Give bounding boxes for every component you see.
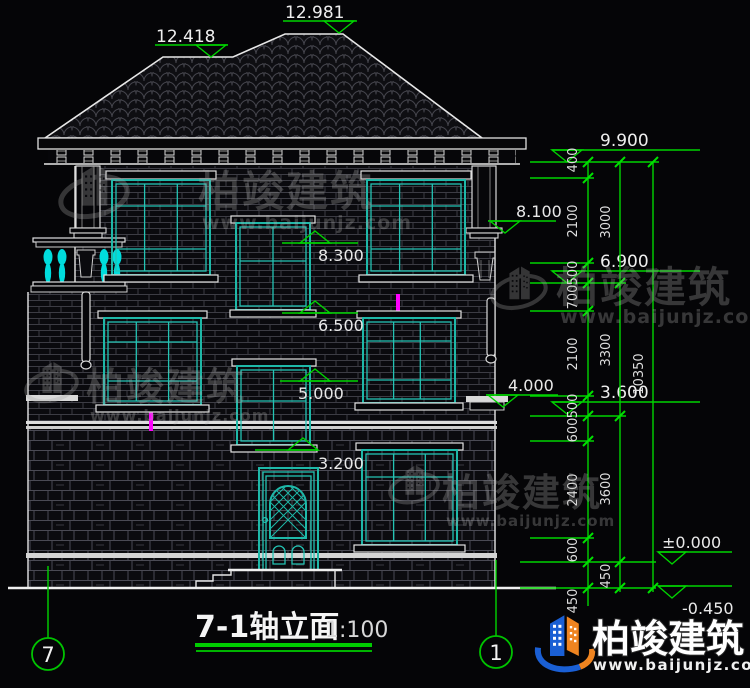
watermark-site: www.baijunjz.com	[202, 212, 412, 234]
title-underline-thick	[195, 643, 372, 647]
balcony-bottom-rail	[33, 282, 125, 286]
wall-plinth	[28, 558, 495, 588]
marker-4000: 4.000	[486, 376, 558, 407]
eave-fascia	[38, 138, 526, 149]
dim-value: 450	[566, 589, 581, 614]
watermark-site: www.baijunjz.com	[560, 306, 750, 328]
level-label: 3.200	[318, 454, 364, 473]
dim-value: 600	[566, 538, 581, 563]
elevation-drawing: 12.418 12.981 8.100 8.300 6.500 5.000	[0, 0, 750, 688]
level-label: 8.300	[318, 246, 364, 265]
level-label: 6.500	[318, 316, 364, 335]
dim-value: 2100	[566, 204, 581, 237]
cad-elevation-sheet: 12.418 12.981 8.100 8.300 6.500 5.000	[0, 0, 750, 688]
dim-col3-labels: 10350	[632, 353, 647, 394]
marker-8100: 8.100	[488, 202, 562, 233]
hip-roof	[38, 34, 526, 164]
pier-capital	[466, 396, 508, 402]
floor2-band	[26, 426, 497, 429]
watermark-brand: 柏竣建筑	[442, 471, 602, 515]
roof-outline	[45, 34, 482, 138]
dim-value: 10350	[632, 353, 647, 394]
watermark-site: www.baijunjz.com	[446, 512, 615, 530]
axis-number-left: 7	[41, 643, 54, 667]
dim-value: 400	[566, 148, 581, 173]
logo-brand: 柏竣建筑	[592, 617, 744, 661]
level-label: 12.981	[285, 3, 344, 23]
level-label: 5.000	[298, 384, 344, 403]
logo-site: www.baijunjz.com	[593, 656, 750, 674]
level-label: 8.100	[516, 202, 562, 221]
watermark-brand: 柏竣建筑	[556, 263, 732, 312]
marker-ridge-high: 12.981	[283, 3, 357, 33]
downpipe-left	[82, 292, 90, 362]
watermark-site: www.baijunjz.com	[90, 406, 269, 425]
watermark-brand: 柏竣建筑	[198, 167, 374, 216]
drawing-scale: 1:100	[325, 618, 388, 643]
marker-site: -0.450	[658, 586, 734, 618]
logo-glyph	[538, 615, 592, 669]
dentil-band	[48, 150, 516, 163]
dim-value: 3000	[599, 205, 614, 238]
dim-col1-labels: 400 2100 500 700 2100 500 600 2400 600 4…	[566, 148, 581, 614]
plinth-band	[26, 553, 497, 558]
axis-number-right: 1	[489, 641, 502, 665]
watermark-brand: 柏竣建筑	[86, 365, 246, 409]
dim-value: 3300	[599, 333, 614, 366]
level-label: 4.000	[508, 376, 554, 395]
title-block: 7-1轴立面 1:100	[195, 610, 388, 652]
level-label: 9.900	[600, 131, 649, 151]
level-label: 12.418	[156, 27, 215, 47]
marker-ridge-low: 12.418	[155, 27, 228, 57]
footer-logo: 柏竣建筑 www.baijunjz.com	[538, 615, 750, 674]
dim-value: 500	[566, 394, 581, 419]
level-label: ±0.000	[662, 533, 721, 552]
dim-value: 450	[599, 564, 614, 589]
dim-value: 600	[566, 418, 581, 443]
marker-zero: ±0.000	[658, 533, 732, 564]
drawing-title: 7-1轴立面	[195, 610, 339, 645]
level-label: -0.450	[682, 599, 734, 618]
downpipe-right	[487, 298, 495, 356]
watermark-2: 柏竣建筑 www.baijunjz.com	[489, 263, 750, 328]
title-underline-thin	[196, 650, 372, 652]
dim-value: 2100	[566, 337, 581, 370]
